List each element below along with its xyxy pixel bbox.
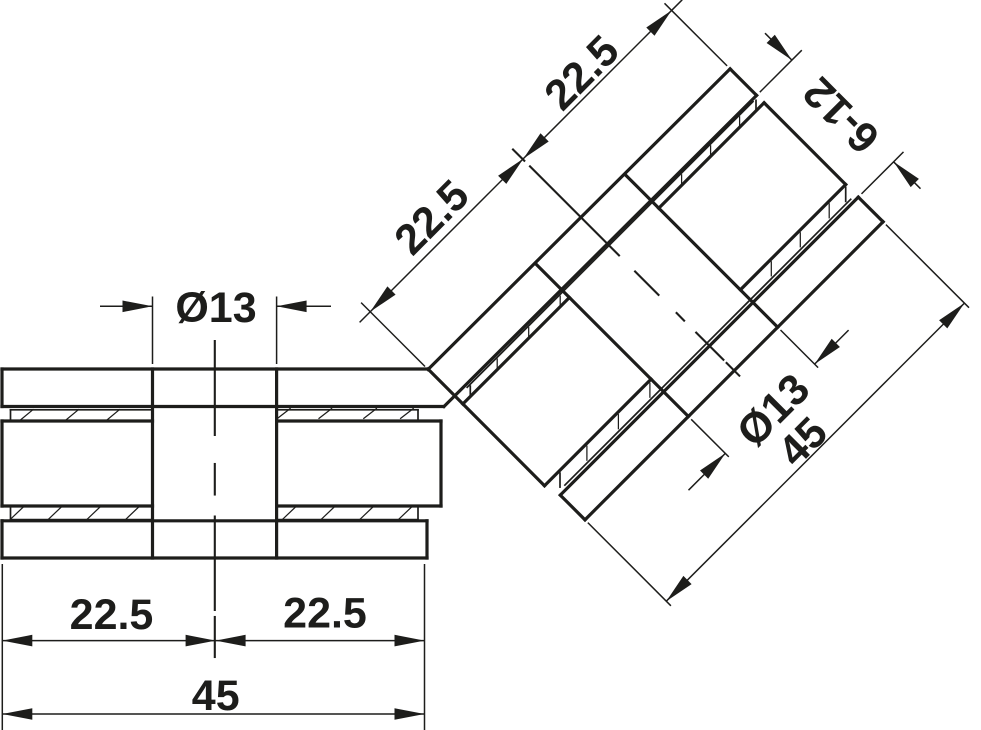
svg-text:22.5: 22.5 (283, 590, 367, 638)
svg-text:45: 45 (192, 672, 240, 720)
svg-text:Ø13: Ø13 (175, 284, 256, 332)
svg-text:22.5: 22.5 (70, 591, 154, 639)
